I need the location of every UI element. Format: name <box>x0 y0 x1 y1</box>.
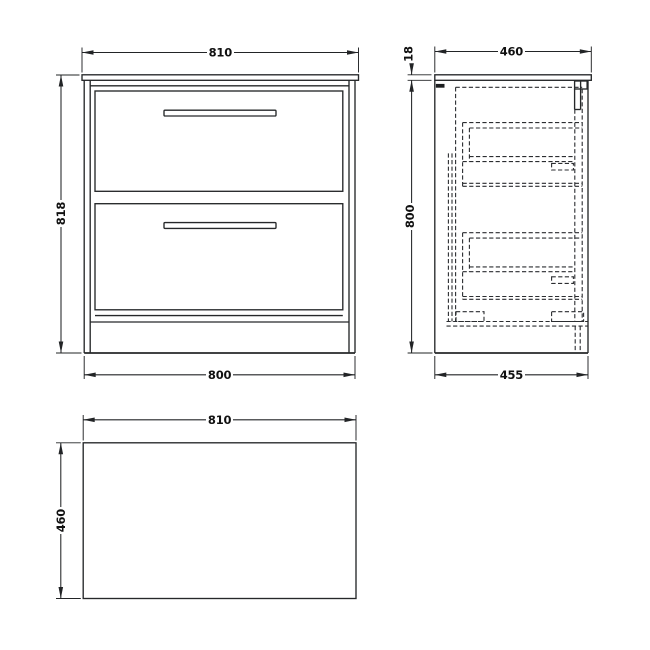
bottom-bracket-front <box>456 312 484 322</box>
drawer-1-hidden <box>463 123 583 187</box>
vanity-unit-technical-drawing: 810 818 800 <box>0 0 650 650</box>
drawer-2-handle-hidden <box>552 277 574 284</box>
side-view-hidden-lines <box>447 87 589 352</box>
front-width-bottom-dimension: 800 <box>84 356 355 382</box>
side-depth-top-dimension: 460 <box>435 45 592 73</box>
side-fixing-block <box>436 84 445 88</box>
front-width-top-label: 810 <box>209 46 233 60</box>
front-worktop <box>82 75 359 81</box>
plan-width-label: 810 <box>208 413 232 427</box>
technical-drawing-page: 810 818 800 <box>0 0 650 650</box>
bottom-bracket-back <box>552 312 584 322</box>
front-width-top-dimension: 810 <box>82 46 359 73</box>
side-depth-bottom-dimension: 455 <box>435 356 588 382</box>
side-height-label: 800 <box>403 204 417 228</box>
plan-depth-dimension: 460 <box>54 443 81 599</box>
drawer-2-front <box>95 204 343 310</box>
side-view: 460 18 800 455 <box>402 45 592 382</box>
front-height-label: 818 <box>54 202 68 226</box>
drawer-2-hidden <box>463 233 583 300</box>
plan-depth-label: 460 <box>54 509 68 533</box>
side-worktop-thickness-label: 18 <box>402 46 416 62</box>
plan-view: 810 460 <box>54 413 356 599</box>
drawer-2-handle <box>164 223 276 229</box>
side-worktop-thickness-dimension: 18 <box>402 46 432 80</box>
front-width-bottom-label: 800 <box>208 368 232 382</box>
drawer-1-front <box>95 91 343 191</box>
front-view: 810 818 800 <box>54 46 359 382</box>
plan-worktop-outline <box>83 443 356 599</box>
plan-width-dimension: 810 <box>83 413 356 441</box>
side-depth-bottom-label: 455 <box>500 368 524 382</box>
side-depth-top-label: 460 <box>500 45 524 59</box>
drawer-1-handle-hidden <box>552 163 574 170</box>
side-height-dimension: 800 <box>403 80 432 353</box>
drawer-1-handle <box>164 110 276 116</box>
side-worktop <box>435 75 592 81</box>
front-height-dimension: 818 <box>54 75 82 353</box>
front-view-object <box>82 75 359 353</box>
